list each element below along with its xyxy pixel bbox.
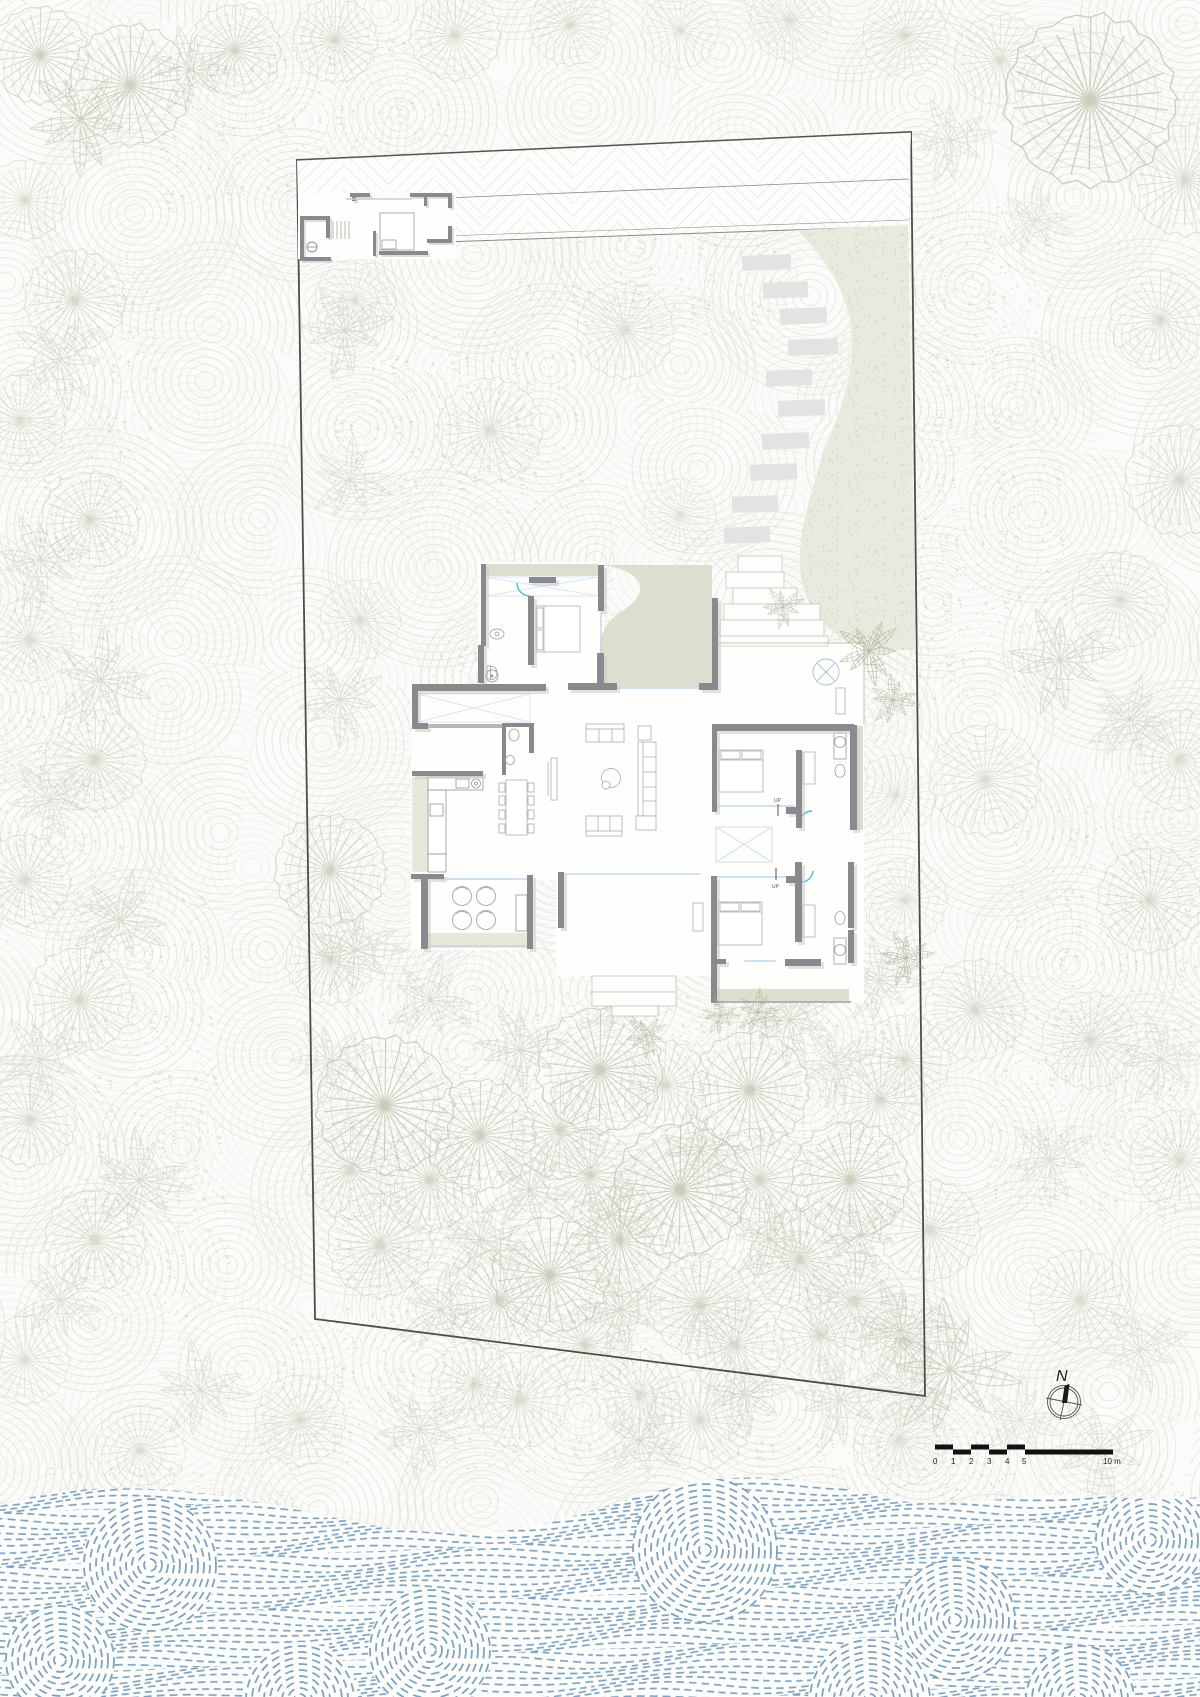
- svg-text:0: 0: [933, 1457, 938, 1466]
- svg-text:UP: UP: [774, 798, 782, 804]
- svg-text:UP: UP: [772, 884, 780, 890]
- svg-text:5: 5: [1022, 1457, 1027, 1466]
- svg-text:3: 3: [987, 1457, 992, 1466]
- svg-text:4: 4: [1005, 1457, 1010, 1466]
- svg-text:N: N: [1056, 1368, 1068, 1385]
- svg-text:2: 2: [969, 1457, 974, 1466]
- svg-text:10 m: 10 m: [1103, 1457, 1121, 1466]
- svg-text:1: 1: [951, 1457, 956, 1466]
